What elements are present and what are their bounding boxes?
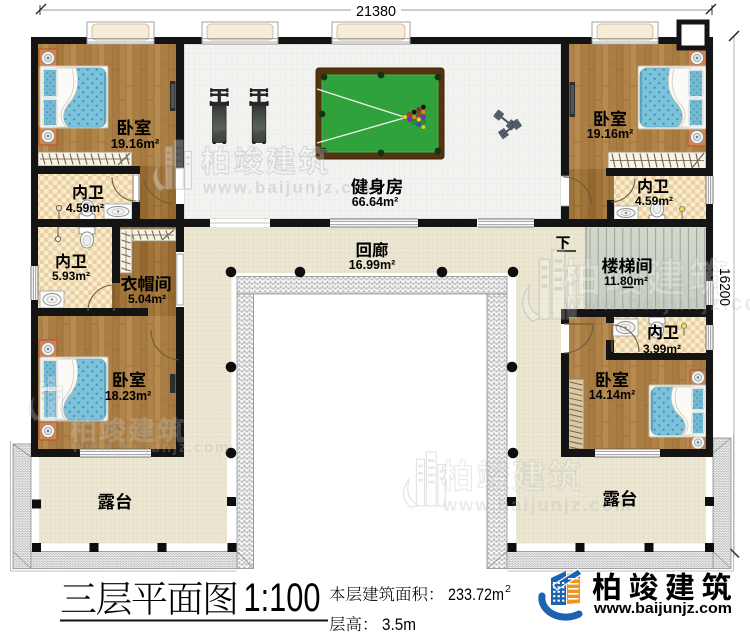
- svg-text:19.16m²: 19.16m²: [587, 127, 634, 141]
- svg-text:www.baijunjz.com: www.baijunjz.com: [593, 601, 732, 617]
- svg-text:66.64m²: 66.64m²: [352, 195, 399, 209]
- svg-text:14.14m²: 14.14m²: [589, 388, 636, 402]
- svg-text:233.72m: 233.72m: [448, 585, 504, 604]
- svg-text:16.99m²: 16.99m²: [349, 258, 396, 272]
- svg-text:4.59m²: 4.59m²: [635, 194, 673, 208]
- svg-text:2: 2: [505, 583, 511, 595]
- svg-text:11.80m²: 11.80m²: [604, 274, 648, 288]
- svg-text:5.04m²: 5.04m²: [128, 292, 166, 306]
- svg-text:21380: 21380: [356, 3, 396, 20]
- svg-text:19.16m²: 19.16m²: [111, 136, 160, 151]
- svg-text:1:100: 1:100: [244, 576, 321, 620]
- svg-text:4.59m²: 4.59m²: [66, 201, 104, 215]
- svg-text:5.93m²: 5.93m²: [52, 269, 90, 283]
- svg-text:18.23m²: 18.23m²: [105, 389, 152, 403]
- svg-text:www.baijunjz.com: www.baijunjz.com: [71, 439, 230, 456]
- svg-text:3.99m²: 3.99m²: [643, 342, 681, 356]
- svg-text:16200: 16200: [716, 268, 733, 306]
- svg-text:3.5m: 3.5m: [382, 615, 416, 634]
